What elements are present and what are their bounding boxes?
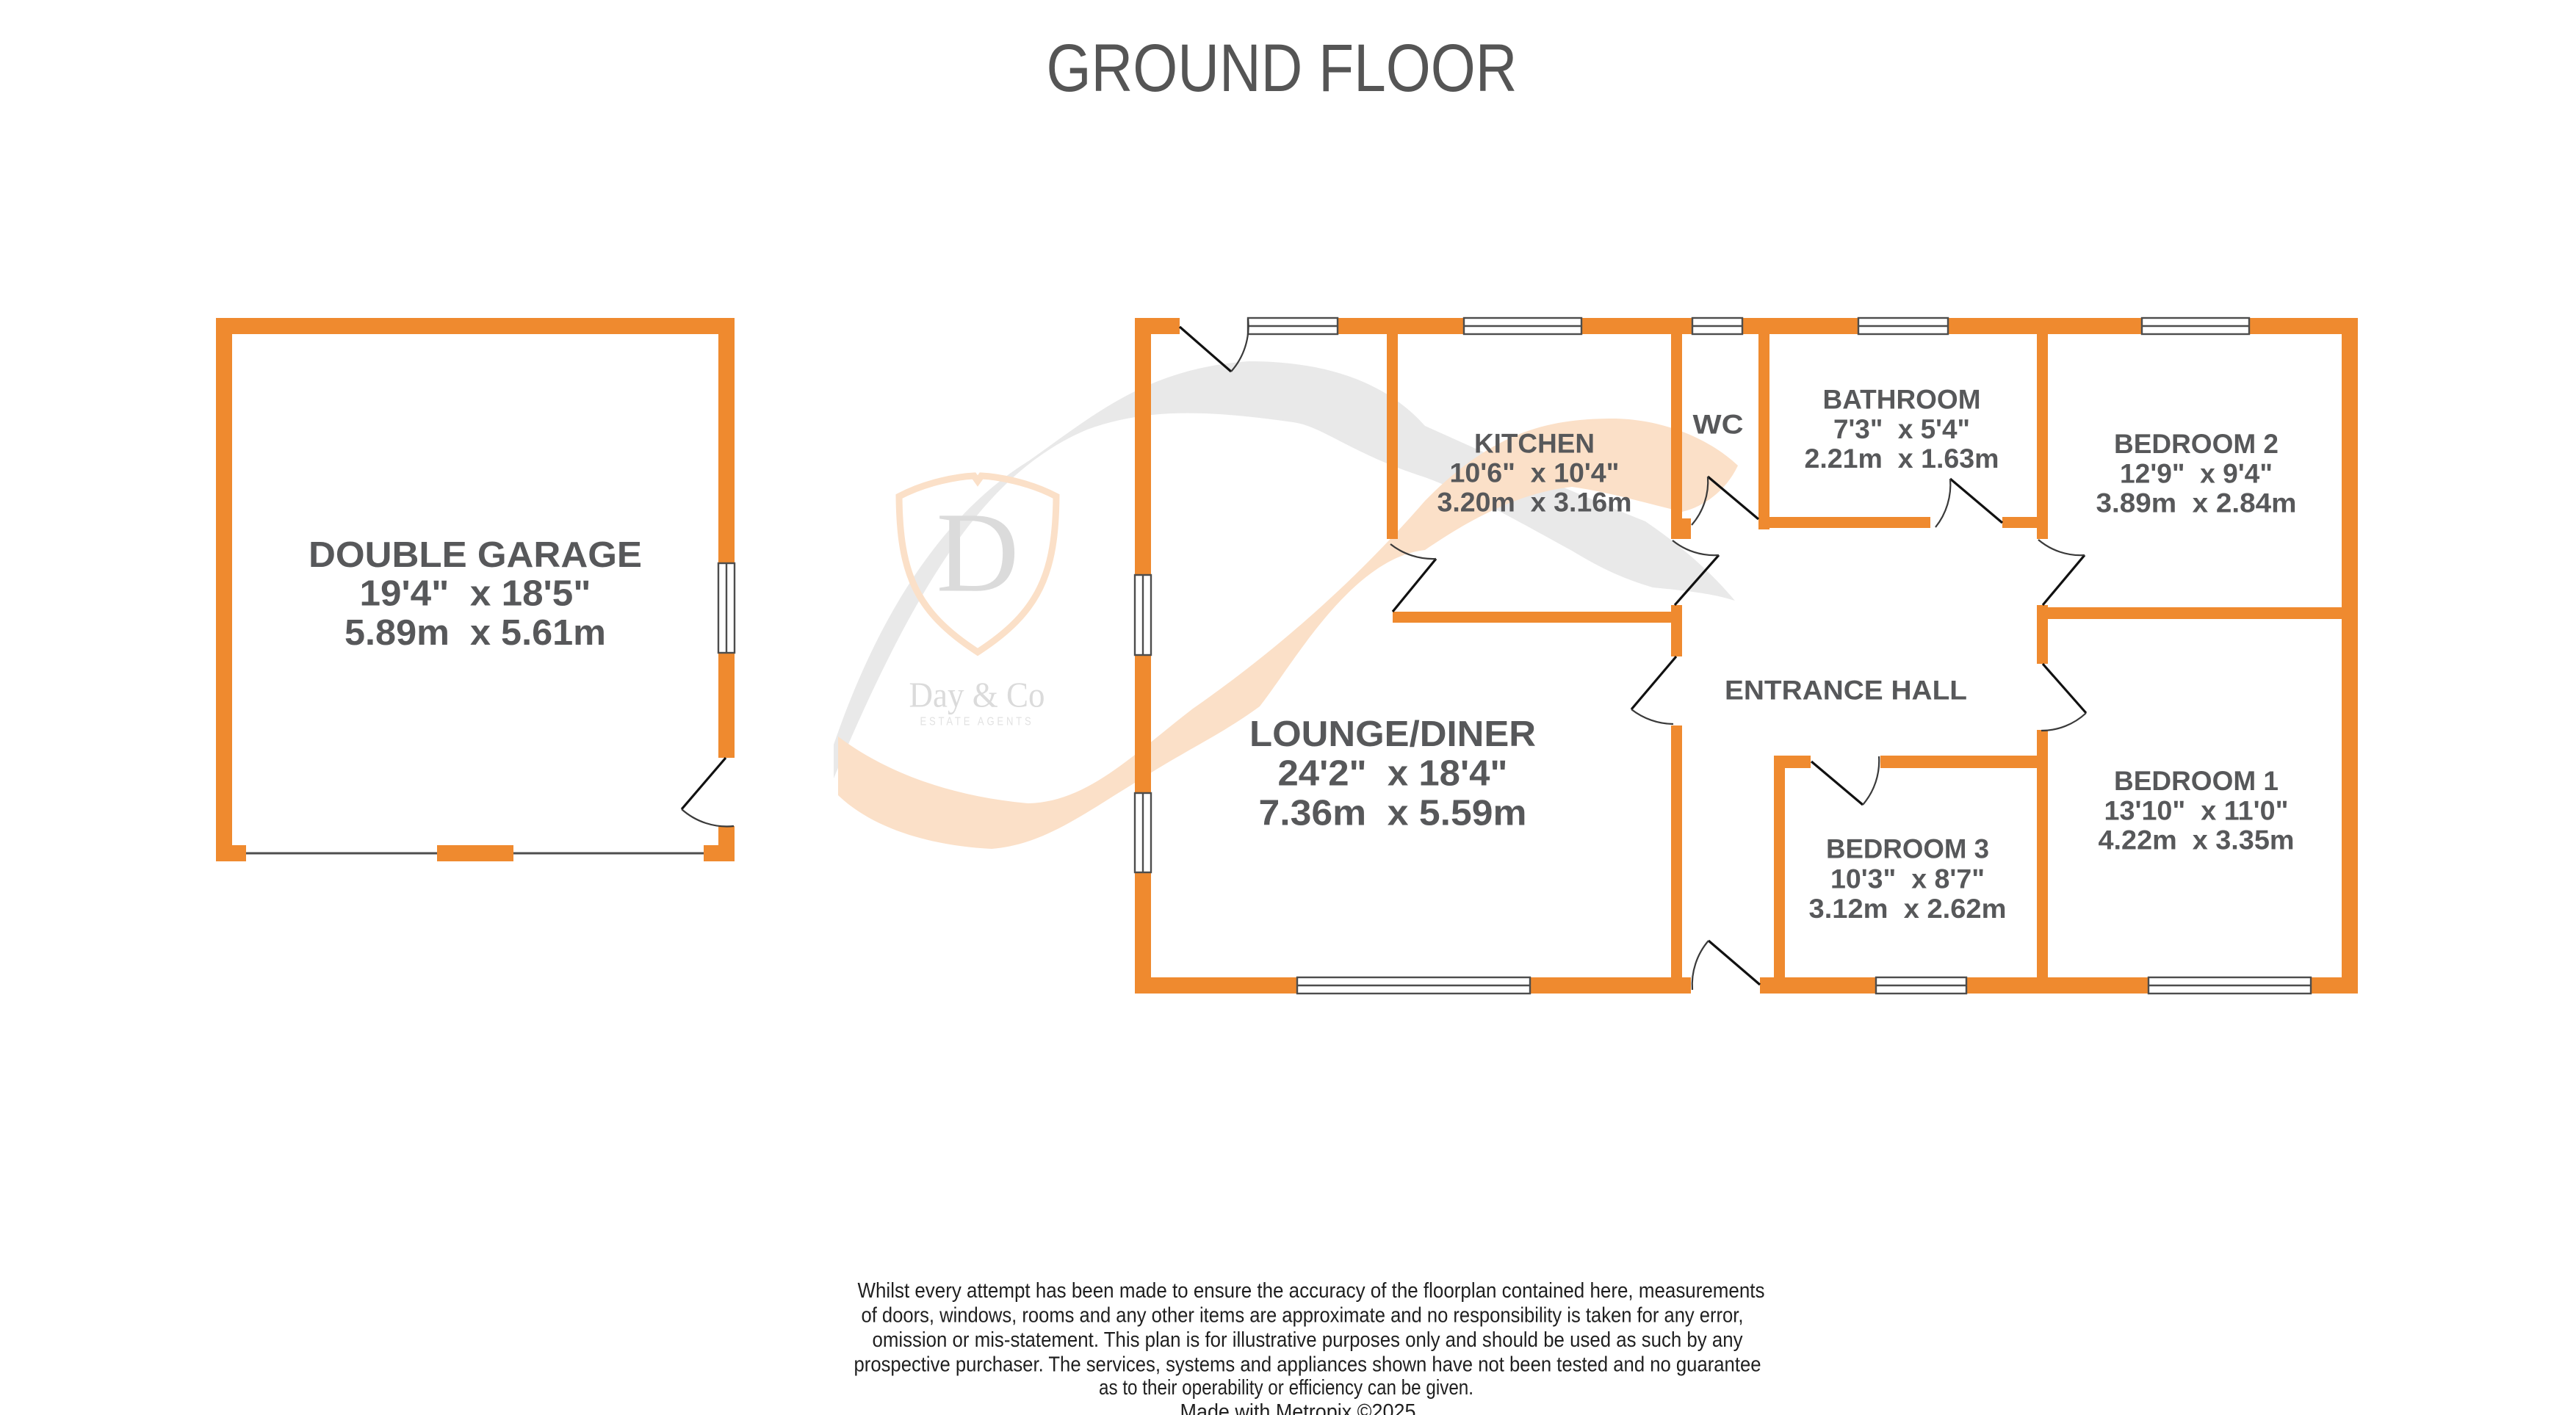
- svg-text:2.21m x 1.63m: 2.21m x 1.63m: [1805, 444, 1999, 474]
- svg-text:omission or mis-statement. Thi: omission or mis-statement. This plan is …: [873, 1328, 1743, 1352]
- svg-text:4.22m x 3.35m: 4.22m x 3.35m: [2099, 825, 2295, 855]
- svg-text:24'2" x 18'4": 24'2" x 18'4": [1278, 754, 1508, 794]
- svg-text:5.89m x 5.61m: 5.89m x 5.61m: [344, 613, 606, 653]
- svg-text:DOUBLE GARAGE: DOUBLE GARAGE: [309, 535, 642, 575]
- svg-text:WC: WC: [1693, 410, 1744, 440]
- svg-text:of doors, windows, rooms and a: of doors, windows, rooms and any other i…: [862, 1304, 1744, 1328]
- svg-text:D: D: [937, 489, 1020, 616]
- svg-text:10'3" x 8'7": 10'3" x 8'7": [1830, 864, 1985, 894]
- svg-text:3.20m x 3.16m: 3.20m x 3.16m: [1437, 488, 1632, 518]
- svg-text:7'3" x 5'4": 7'3" x 5'4": [1833, 414, 1970, 444]
- svg-text:BEDROOM 2: BEDROOM 2: [2114, 429, 2279, 459]
- svg-text:GROUND FLOOR: GROUND FLOOR: [1047, 31, 1518, 106]
- svg-text:BEDROOM 3: BEDROOM 3: [1826, 834, 1989, 864]
- svg-text:Made with Metropix ©2025: Made with Metropix ©2025: [1180, 1400, 1416, 1415]
- svg-text:BATHROOM: BATHROOM: [1823, 385, 1981, 415]
- svg-text:19'4" x 18'5": 19'4" x 18'5": [360, 574, 591, 614]
- svg-text:Whilst every attempt has been: Whilst every attempt has been made to en…: [858, 1279, 1765, 1303]
- svg-text:10'6" x 10'4": 10'6" x 10'4": [1450, 458, 1620, 488]
- svg-text:prospective purchaser. The ser: prospective purchaser. The services, sys…: [854, 1353, 1761, 1377]
- svg-text:LOUNGE/DINER: LOUNGE/DINER: [1249, 714, 1536, 754]
- svg-text:ESTATE AGENTS: ESTATE AGENTS: [920, 716, 1034, 728]
- svg-text:12'9" x 9'4": 12'9" x 9'4": [2120, 459, 2273, 489]
- svg-text:3.12m x 2.62m: 3.12m x 2.62m: [1809, 894, 2007, 924]
- svg-text:ENTRANCE HALL: ENTRANCE HALL: [1725, 676, 1967, 706]
- svg-text:as to their operability or eff: as to their operability or efficiency ca…: [1099, 1376, 1473, 1400]
- svg-text:BEDROOM 1: BEDROOM 1: [2114, 766, 2279, 796]
- svg-text:KITCHEN: KITCHEN: [1474, 429, 1595, 459]
- svg-text:7.36m x 5.59m: 7.36m x 5.59m: [1259, 794, 1527, 833]
- svg-text:13'10" x 11'0": 13'10" x 11'0": [2104, 796, 2289, 826]
- svg-text:3.89m x 2.84m: 3.89m x 2.84m: [2096, 488, 2297, 518]
- svg-text:Day & Co: Day & Co: [909, 675, 1045, 715]
